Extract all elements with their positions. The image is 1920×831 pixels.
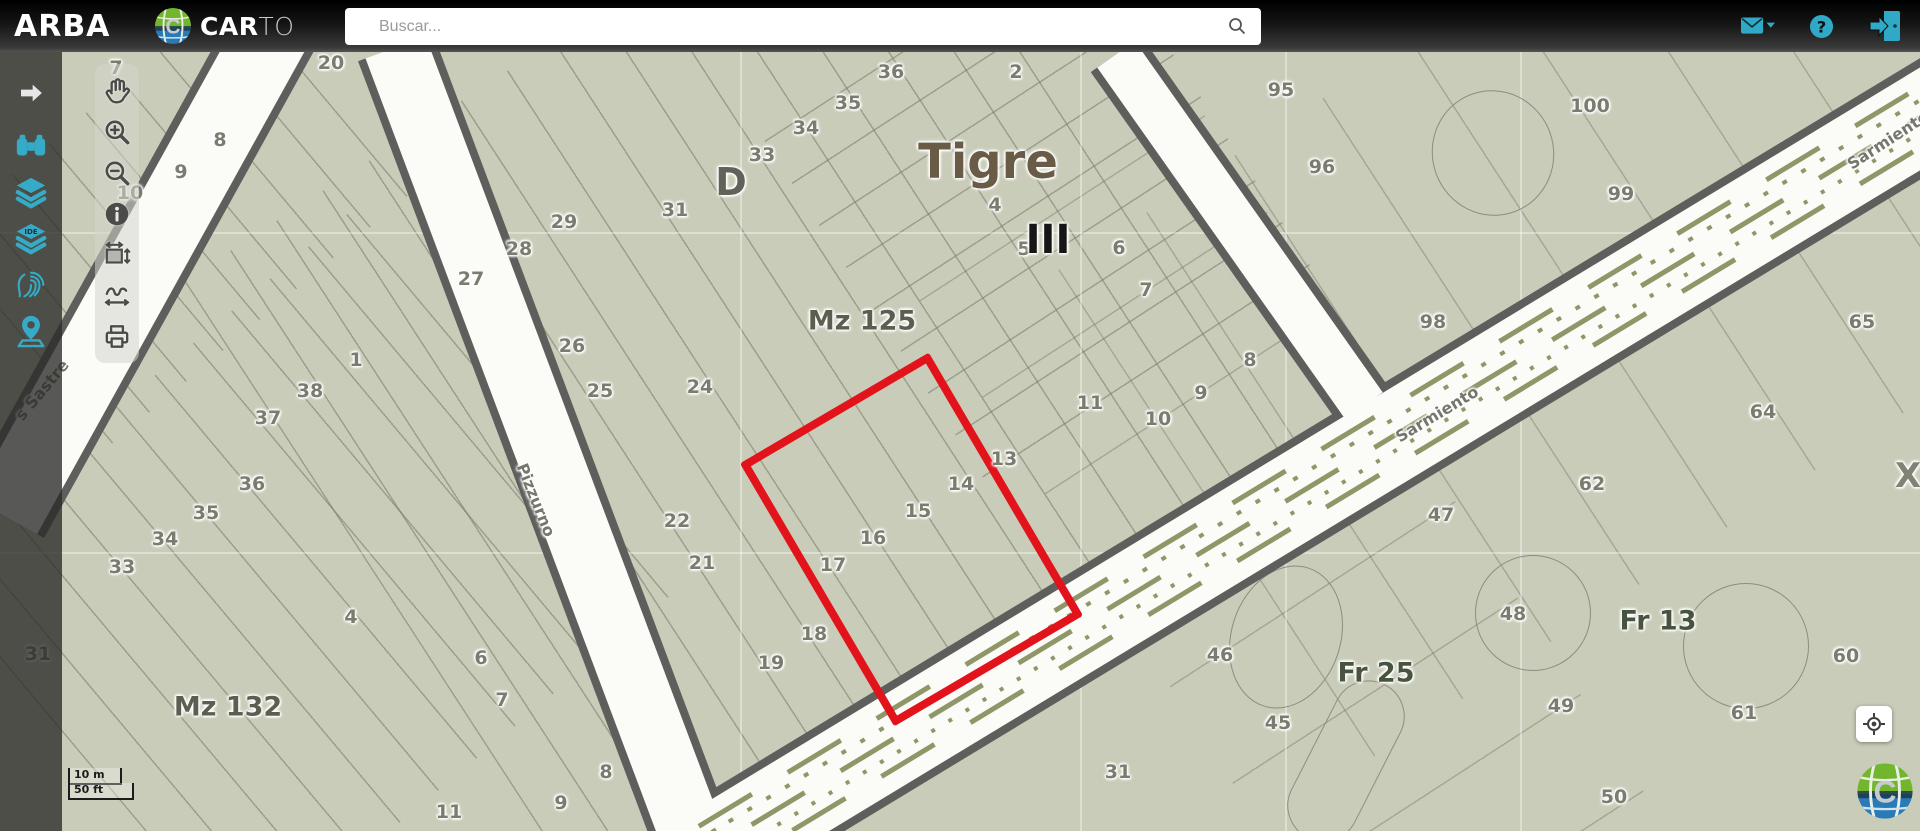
svg-text:IDE: IDE bbox=[24, 227, 38, 236]
parcel-number: 64 bbox=[1750, 401, 1776, 423]
search-icon[interactable] bbox=[1227, 16, 1247, 36]
layers-icon bbox=[14, 176, 48, 210]
parcel-number: 35 bbox=[193, 502, 219, 524]
scale-bar: 10 m 50 ft bbox=[68, 768, 134, 800]
svg-text:?: ? bbox=[1817, 17, 1826, 36]
logout-icon bbox=[1868, 9, 1902, 43]
parcel-number: 22 bbox=[664, 510, 690, 532]
info-icon bbox=[102, 199, 132, 229]
parcel-number: 1 bbox=[349, 349, 362, 371]
parcel-number: 4 bbox=[988, 194, 1001, 216]
hand-icon bbox=[102, 76, 132, 106]
fingerprint-icon bbox=[14, 268, 48, 302]
header-actions: ? bbox=[1741, 0, 1902, 52]
zoom-in-tool[interactable] bbox=[98, 111, 136, 152]
measure-distance-tool[interactable] bbox=[98, 275, 136, 316]
binoculars-icon bbox=[14, 130, 48, 164]
location-pin-icon bbox=[14, 314, 48, 348]
parcel-number: 62 bbox=[1579, 473, 1605, 495]
map-labels-layer: 7203629535100348339693199102942856277986… bbox=[0, 52, 1920, 831]
parcel-number: 9 bbox=[1194, 382, 1207, 404]
zoom-in-icon bbox=[102, 117, 132, 147]
map-toolbar bbox=[95, 64, 139, 363]
search-bar bbox=[345, 8, 1261, 45]
help-icon: ? bbox=[1809, 14, 1834, 39]
parcel-number: 60 bbox=[1833, 645, 1859, 667]
parcel-number: 38 bbox=[297, 380, 323, 402]
measure-area-icon bbox=[102, 240, 132, 270]
sidebar-item-search[interactable] bbox=[0, 124, 62, 170]
parcel-number: 50 bbox=[1601, 786, 1627, 808]
parcel-number: 33 bbox=[109, 556, 135, 578]
parcel-number: 34 bbox=[152, 528, 178, 550]
measure-area-tool[interactable] bbox=[98, 234, 136, 275]
region-label: Fr 13 bbox=[1619, 606, 1696, 637]
parcel-number: 35 bbox=[835, 92, 861, 114]
parcel-number: 18 bbox=[801, 623, 827, 645]
parcel-number: 65 bbox=[1849, 311, 1875, 333]
parcel-number: 36 bbox=[239, 473, 265, 495]
parcel-number: 2 bbox=[1009, 61, 1022, 83]
carto-globe-logo: C bbox=[1856, 762, 1914, 824]
svg-text:C: C bbox=[1873, 774, 1896, 810]
search-input[interactable] bbox=[345, 8, 1261, 45]
parcel-number: 31 bbox=[1105, 761, 1131, 783]
left-sidebar: IDE bbox=[0, 52, 62, 831]
parcel-number: 6 bbox=[1112, 237, 1125, 259]
parcel-number: 61 bbox=[1731, 702, 1757, 724]
messages-button[interactable] bbox=[1741, 15, 1775, 37]
parcel-number: 45 bbox=[1265, 712, 1291, 734]
parcel-number: 31 bbox=[662, 199, 688, 221]
parcel-number: 9 bbox=[554, 792, 567, 814]
parcel-number: 98 bbox=[1420, 311, 1446, 333]
sidebar-item-ide-layers[interactable]: IDE bbox=[0, 216, 62, 262]
parcel-number: 11 bbox=[436, 801, 462, 823]
parcel-number: 4 bbox=[344, 606, 357, 628]
scale-imperial: 50 ft bbox=[68, 783, 134, 800]
sidebar-item-fingerprint[interactable] bbox=[0, 262, 62, 308]
parcel-number: 46 bbox=[1207, 644, 1233, 666]
print-icon bbox=[102, 322, 132, 352]
region-label: Tigre bbox=[918, 134, 1058, 190]
parcel-number: 95 bbox=[1268, 79, 1294, 101]
svg-text:C: C bbox=[165, 16, 180, 39]
measure-distance-icon bbox=[102, 281, 132, 311]
parcel-number: 8 bbox=[599, 761, 612, 783]
map-canvas[interactable]: 7203629535100348339693199102942856277986… bbox=[0, 52, 1920, 831]
parcel-number: 24 bbox=[687, 376, 713, 398]
street-label: Sarmiento bbox=[1392, 382, 1482, 446]
parcel-number: 7 bbox=[1139, 279, 1152, 301]
parcel-number: 28 bbox=[506, 238, 532, 260]
sidebar-item-location[interactable] bbox=[0, 308, 62, 354]
parcel-number: 27 bbox=[458, 268, 484, 290]
print-tool[interactable] bbox=[98, 316, 136, 357]
sidebar-item-layers[interactable] bbox=[0, 170, 62, 216]
geolocate-button[interactable] bbox=[1856, 706, 1892, 742]
expand-arrow-icon bbox=[16, 78, 46, 108]
parcel-number: 14 bbox=[948, 473, 974, 495]
parcel-number: 99 bbox=[1608, 183, 1634, 205]
parcel-number: 10 bbox=[1145, 408, 1171, 430]
parcel-number: 36 bbox=[878, 61, 904, 83]
parcel-number: 17 bbox=[820, 554, 846, 576]
street-label: Pizzurno bbox=[513, 461, 560, 540]
help-button[interactable]: ? bbox=[1809, 14, 1834, 39]
parcel-number: 6 bbox=[474, 647, 487, 669]
parcel-number: 48 bbox=[1500, 603, 1526, 625]
parcel-number: 19 bbox=[758, 652, 784, 674]
parcel-number: 13 bbox=[991, 448, 1017, 470]
crosshair-icon bbox=[1862, 712, 1886, 736]
parcel-number: 9 bbox=[174, 161, 187, 183]
carto-globe-icon: C bbox=[154, 7, 192, 45]
parcel-number: 49 bbox=[1548, 695, 1574, 717]
parcel-number: 37 bbox=[255, 407, 281, 429]
zoom-out-icon bbox=[102, 158, 132, 188]
pan-tool[interactable] bbox=[98, 70, 136, 111]
parcel-number: 20 bbox=[318, 52, 344, 74]
region-label: X bbox=[1895, 456, 1920, 496]
street-label: Sarmiento bbox=[1844, 107, 1920, 174]
logout-button[interactable] bbox=[1868, 9, 1902, 43]
parcel-number: 15 bbox=[905, 500, 931, 522]
zoom-out-tool[interactable] bbox=[98, 152, 136, 193]
arba-logo: ARBA bbox=[14, 9, 124, 44]
region-label: D bbox=[715, 160, 747, 204]
parcel-number: 26 bbox=[559, 335, 585, 357]
parcel-number: 16 bbox=[860, 527, 886, 549]
region-label: Mz 125 bbox=[808, 306, 916, 337]
parcel-number: 25 bbox=[587, 380, 613, 402]
parcel-number: 29 bbox=[551, 211, 577, 233]
ide-layers-icon: IDE bbox=[14, 222, 48, 256]
parcel-number: 7 bbox=[495, 689, 508, 711]
region-label: III bbox=[1026, 217, 1071, 263]
region-label: Mz 132 bbox=[174, 692, 282, 723]
parcel-number: 47 bbox=[1428, 504, 1454, 526]
parcel-number: 100 bbox=[1570, 95, 1610, 117]
parcel-number: 11 bbox=[1077, 392, 1103, 414]
parcel-number: 8 bbox=[1243, 349, 1256, 371]
parcel-number: 34 bbox=[793, 117, 819, 139]
top-header: ARBA C CARTO bbox=[0, 0, 1920, 52]
parcel-number: 96 bbox=[1309, 156, 1335, 178]
parcel-number: 8 bbox=[213, 129, 226, 151]
messages-icon bbox=[1741, 15, 1775, 37]
carto-wordmark: CARTO bbox=[200, 12, 294, 41]
carto-logo: C CARTO bbox=[154, 7, 294, 45]
parcel-number: 33 bbox=[749, 144, 775, 166]
parcel-number: 21 bbox=[689, 552, 715, 574]
info-tool[interactable] bbox=[98, 193, 136, 234]
expand-sidebar-button[interactable] bbox=[0, 70, 62, 116]
region-label: Fr 25 bbox=[1337, 658, 1414, 689]
